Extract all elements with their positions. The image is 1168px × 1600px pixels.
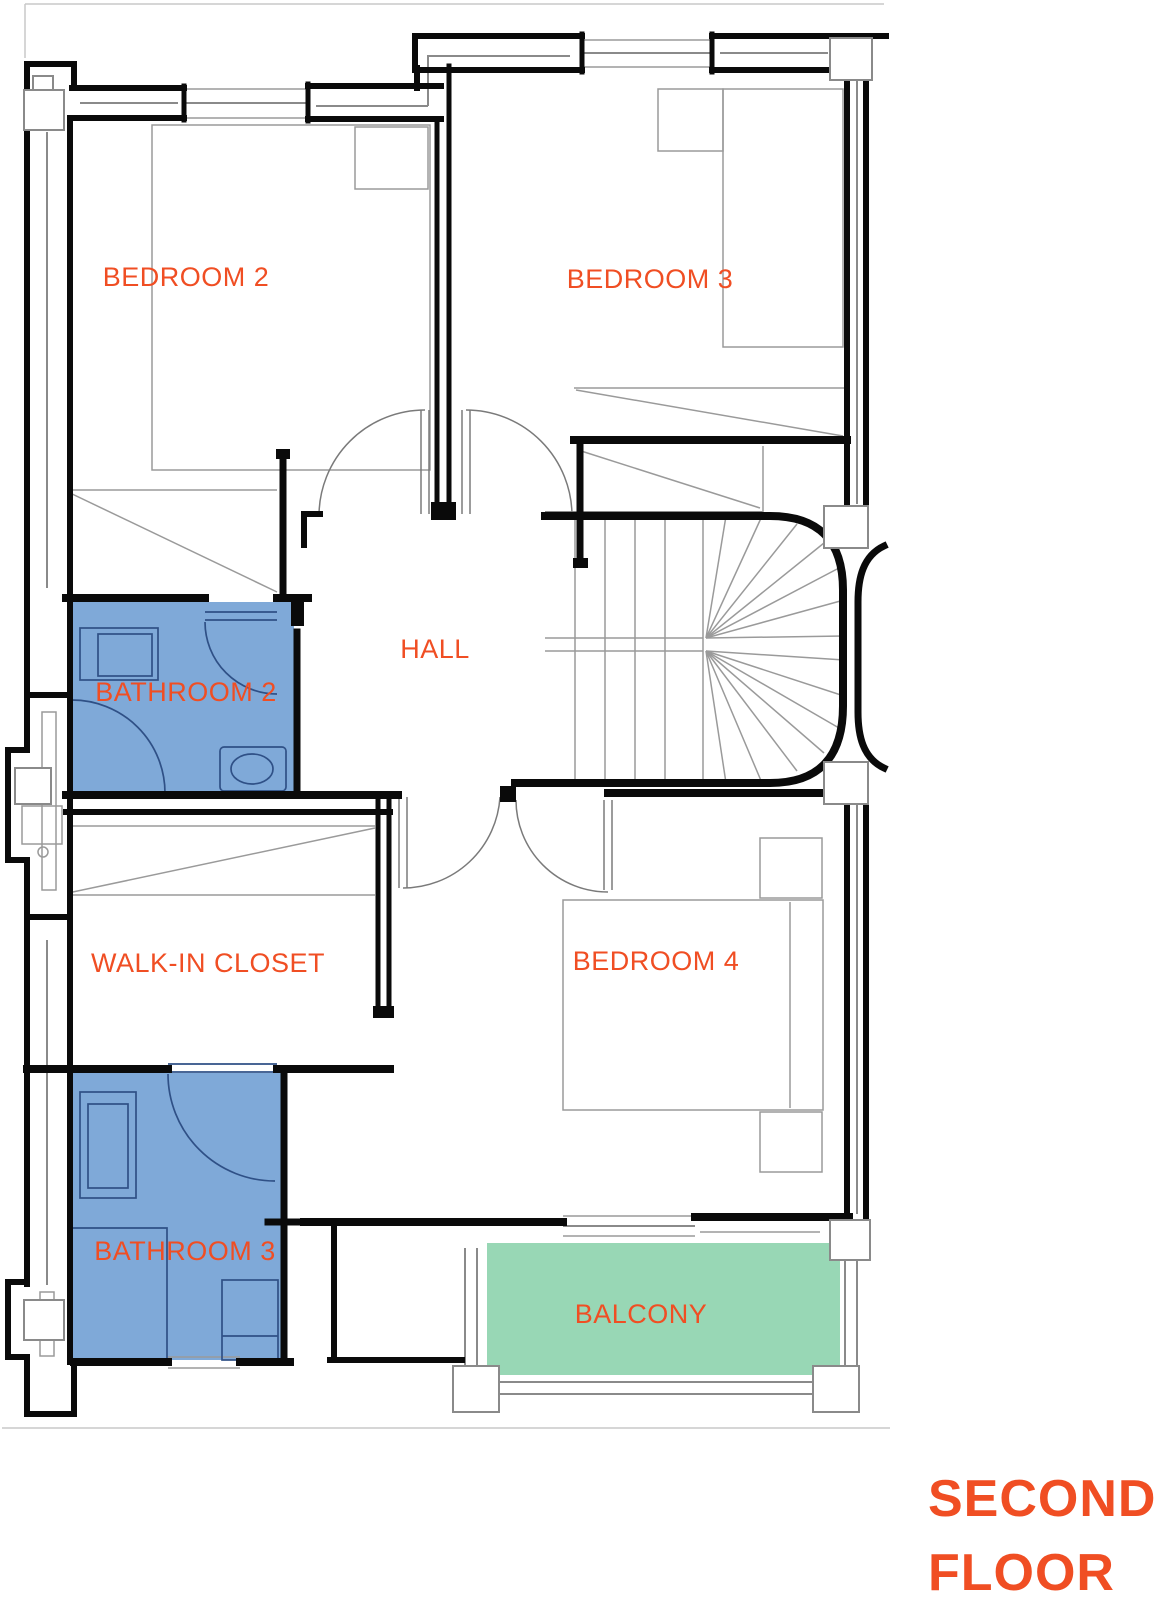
- wall-stair-enclosure: [515, 516, 843, 783]
- stair-winder: [706, 651, 762, 783]
- label-bathroom-2: BATHROOM 2: [95, 677, 277, 707]
- column-left-lower: [24, 1300, 64, 1340]
- stair-winder: [706, 651, 726, 783]
- label-walk-in-closet: WALK-IN CLOSET: [91, 948, 325, 978]
- column-right-lower: [830, 1220, 870, 1260]
- bedroom-4-nightstand-top: [760, 838, 822, 898]
- floor-plan-drawing: BEDROOM 2 BEDROOM 3 HALL BATHROOM 2 WALK…: [0, 0, 1168, 1600]
- floor-title-line2: FLOOR: [928, 1544, 1115, 1600]
- bedroom-3-nightstand: [658, 89, 723, 151]
- wall-door-jamb: [500, 786, 516, 802]
- bedroom-2-nightstand: [355, 127, 428, 189]
- bathroom-3-area: [72, 1073, 284, 1360]
- label-hall: HALL: [400, 634, 470, 664]
- stair-winder: [706, 651, 844, 660]
- column-right-upper: [824, 506, 868, 548]
- wall-cap: [373, 1006, 394, 1018]
- floor-plan: BEDROOM 2 BEDROOM 3 HALL BATHROOM 2 WALK…: [0, 0, 1168, 1600]
- label-bedroom-2: BEDROOM 2: [103, 262, 270, 292]
- bedroom-4-door-arc: [516, 800, 608, 892]
- column-cap-topleft: [33, 76, 53, 90]
- stair-winder: [706, 543, 824, 638]
- wall-cap: [573, 558, 588, 568]
- stair-winder: [706, 651, 797, 771]
- stair-winder: [706, 524, 797, 638]
- suite-door-arc: [403, 797, 500, 888]
- bedroom-2-bed: [152, 125, 430, 470]
- wall-cap: [276, 449, 290, 459]
- balcony-post-left: [453, 1366, 499, 1412]
- service-pipe: [38, 847, 48, 857]
- stair-winder: [706, 568, 839, 638]
- bedroom-2-wardrobe-diagonal: [68, 492, 277, 592]
- linen-closet-diagonal: [578, 450, 760, 508]
- column-topright: [830, 38, 872, 80]
- label-bedroom-4: BEDROOM 4: [573, 946, 740, 976]
- stair-winder: [706, 600, 844, 638]
- bedroom-2-door-arc: [319, 410, 425, 516]
- label-bedroom-3: BEDROOM 3: [567, 264, 734, 294]
- wall-door-jamb-stub: [304, 514, 320, 545]
- stair-winder: [706, 651, 844, 696]
- wall-divider-cap: [431, 502, 456, 520]
- label-bathroom-3: BATHROOM 3: [94, 1236, 276, 1266]
- bedroom-3-bed: [723, 89, 843, 347]
- label-balcony: BALCONY: [575, 1299, 708, 1329]
- stair-winder: [706, 636, 844, 638]
- balcony-post-right: [813, 1366, 859, 1412]
- column-right-mid: [824, 762, 868, 804]
- bedroom-4-nightstand-bottom: [760, 1112, 822, 1172]
- stair-winder: [706, 516, 762, 638]
- closet-wardrobe-diagonal: [68, 828, 375, 893]
- bedroom-4-bed: [563, 900, 823, 1110]
- wall-bath2-jamb: [291, 600, 304, 626]
- stair-winder: [706, 651, 839, 728]
- stair-winder: [706, 516, 726, 638]
- staircase: [545, 516, 844, 783]
- bedroom-3-wardrobe-diagonal: [576, 390, 843, 436]
- floor-title: SECOND FLOOR: [928, 1470, 1156, 1600]
- wall-curved-bay: [858, 546, 884, 768]
- floor-title-line1: SECOND: [928, 1470, 1156, 1528]
- column-left-bay: [15, 768, 51, 804]
- stair-winder: [706, 651, 824, 753]
- column-topleft: [24, 90, 64, 130]
- bedroom-3-door-arc: [466, 410, 572, 516]
